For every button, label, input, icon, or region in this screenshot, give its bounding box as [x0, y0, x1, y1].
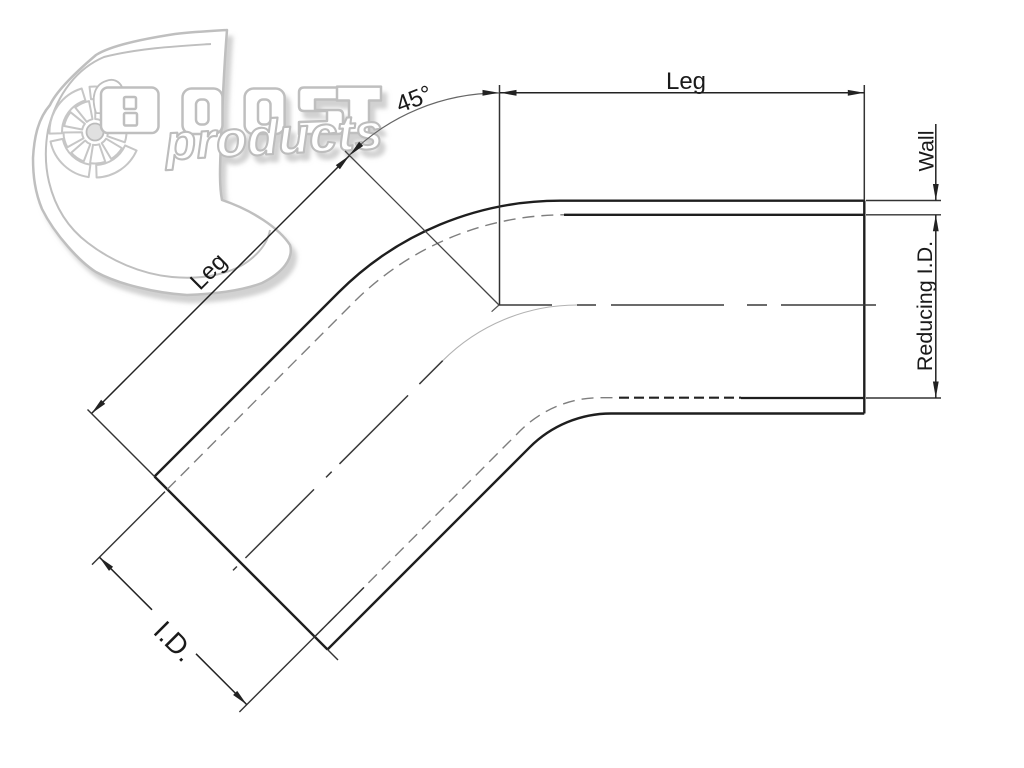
svg-text:Reducing I.D.: Reducing I.D.	[913, 241, 937, 371]
svg-text:Leg: Leg	[666, 68, 706, 95]
svg-text:Wall: Wall	[915, 130, 939, 171]
svg-text:products: products	[162, 103, 385, 170]
